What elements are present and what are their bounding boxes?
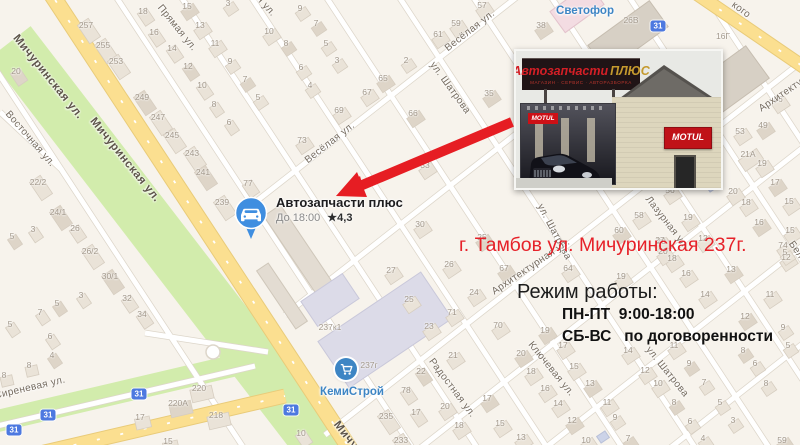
building-number: 243	[185, 148, 199, 158]
building-number: 17	[770, 177, 779, 187]
street-label: кого	[729, 0, 752, 21]
fence	[516, 178, 612, 188]
building-number: 6	[299, 62, 304, 72]
building-number: 71	[447, 307, 456, 317]
hours-weekdays: ПН-ПТ 9:00-18:00	[562, 306, 695, 324]
poi-kemistroy[interactable]: КемиСтрой	[320, 386, 384, 398]
building-number: 58	[634, 210, 643, 220]
building-number: 14	[700, 289, 709, 299]
building-number: 8	[764, 378, 769, 388]
building-number: 17	[135, 412, 144, 422]
building-number: 30	[415, 219, 424, 229]
building-number: 8	[284, 38, 289, 48]
building-number: 10	[197, 80, 206, 90]
building-number: 3	[31, 224, 36, 234]
building-number: 6	[48, 331, 53, 341]
map-screenshot: 202572552532492472452432412397722/224/11…	[0, 0, 800, 445]
building-number: 245	[165, 130, 179, 140]
building-number: 16	[540, 383, 549, 393]
building-number: 239	[215, 197, 229, 207]
billboard: MOTUL	[520, 103, 616, 185]
building-number: 12	[567, 415, 576, 425]
building-number: 16	[681, 268, 690, 278]
street-label: Мичуринская ул.	[331, 419, 405, 445]
street-label: ул. Шатрова	[643, 345, 690, 400]
building-number: 26В	[623, 15, 638, 25]
building-number: 7	[243, 74, 248, 84]
building-window	[674, 155, 696, 190]
building-number: 7	[626, 433, 631, 443]
building-number: 14	[623, 345, 632, 355]
street-label: Весёлая ул.	[443, 8, 497, 54]
building-number: 32	[122, 293, 131, 303]
building-number: 69	[334, 105, 343, 115]
building-number: 220	[192, 383, 206, 393]
building-number: 33	[420, 160, 429, 170]
building-number: 15	[785, 225, 794, 235]
building-number: 16	[149, 27, 158, 37]
building-number: 21	[448, 350, 457, 360]
motul-wall-sign: MOTUL	[664, 127, 712, 149]
building-number: 34	[137, 309, 146, 319]
street-label: Прямая ул.	[155, 3, 199, 54]
building-number: 15	[495, 418, 504, 428]
street-label: Сиреневая ул.	[0, 374, 67, 401]
building-number: 5	[783, 247, 788, 257]
building-number: 233	[394, 435, 408, 445]
building-number: 8	[2, 370, 7, 380]
street-label: Мичуринская ул.	[87, 115, 162, 204]
building-number: 57	[477, 0, 486, 10]
building-number: 15	[569, 361, 578, 371]
building-number: 5	[55, 298, 60, 308]
map-pin-autoparts[interactable]	[231, 196, 271, 242]
building-number: 67	[362, 87, 371, 97]
building-number: 3	[226, 0, 231, 8]
address-annotation: г. Тамбов ул. Мичуринская 237г.	[459, 234, 747, 257]
building-number: 5	[718, 397, 723, 407]
building-number: 4	[701, 433, 706, 443]
building-number: 59	[777, 435, 786, 445]
building-number: 12	[740, 311, 749, 321]
building-number: 9	[228, 56, 233, 66]
building-number: 22/2	[30, 177, 47, 187]
building-number: 15	[182, 1, 191, 11]
street-label: вая ул.	[246, 0, 278, 19]
building-number: 10	[581, 435, 590, 445]
building-number: 12	[183, 61, 192, 71]
building-number: 20	[11, 66, 20, 76]
building-number: 5	[256, 92, 261, 102]
building-number: 247	[151, 112, 165, 122]
building-number: 6	[753, 358, 758, 368]
street-label: Ключевая ул.	[526, 340, 577, 399]
street-label: Восточная ул.	[3, 109, 57, 169]
building-number: 66	[408, 108, 417, 118]
building-number: 24/1	[50, 207, 67, 217]
building-number: 218	[209, 410, 223, 420]
building-number: 4	[50, 350, 55, 360]
building-number: 20	[728, 186, 737, 196]
building-number: 241	[196, 167, 210, 177]
building-number: 11	[211, 38, 220, 48]
building-number: 16	[754, 217, 763, 227]
building-number: 5	[10, 231, 15, 241]
street-label: Мичуринская ул.	[10, 32, 85, 121]
building-number: 10	[296, 428, 305, 438]
building-number: 17	[411, 407, 420, 417]
building-number: 3	[335, 55, 340, 65]
building-number: 5	[324, 38, 329, 48]
building-number: 61	[433, 29, 442, 39]
building-number: 9	[298, 3, 303, 13]
building-number: 10	[264, 26, 273, 36]
building-number: 78	[401, 385, 410, 395]
building-number: 11	[603, 397, 612, 407]
building-number: 25	[404, 294, 413, 304]
building-number: 9	[613, 412, 618, 422]
building-number: 7	[314, 18, 319, 28]
building-number: 35	[484, 88, 493, 98]
building-number: 9	[781, 322, 786, 332]
building-number: 64	[563, 263, 572, 273]
building-number: 13	[585, 378, 594, 388]
hours-title: Режим работы:	[517, 281, 658, 304]
building-number: 77	[243, 178, 252, 188]
building-number: 59	[451, 18, 460, 28]
building-number: 255	[96, 40, 110, 50]
building-number: 253	[109, 56, 123, 66]
building-number: 235	[379, 411, 393, 421]
building-number: 27	[386, 265, 395, 275]
building-number: 13	[195, 20, 204, 30]
route-number-badge: 31	[651, 21, 666, 32]
building-number: 19	[616, 271, 625, 281]
route-number-badge: 31	[132, 389, 147, 400]
shopping-cart-icon[interactable]	[335, 358, 357, 380]
building-number: 20	[440, 401, 449, 411]
building-number: 9	[687, 358, 692, 368]
street-label: Архитектурная ул.	[757, 54, 800, 114]
building-wall: MOTUL	[612, 97, 721, 188]
route-number-badge: 31	[284, 405, 299, 416]
poi-svetofor[interactable]: Светофор	[556, 5, 614, 17]
building-number: 38	[536, 20, 545, 30]
building-number: 257	[79, 20, 93, 30]
building-number: 19	[757, 158, 766, 168]
building-number: 17	[482, 393, 491, 403]
building-number: 19	[540, 325, 549, 335]
building-number: 237г	[360, 360, 377, 370]
building-number: 18	[454, 420, 463, 430]
building-number: 26	[70, 223, 79, 233]
building-number: 18	[526, 366, 535, 376]
building-number: 46	[773, 94, 782, 104]
street-label: Весёлая ул.	[303, 120, 357, 166]
building-number: 8	[741, 345, 746, 355]
building-number: 23	[424, 321, 433, 331]
building-number: 8	[212, 99, 217, 109]
building-number: 10	[653, 378, 662, 388]
street-label: ул. Шатрова	[427, 60, 472, 116]
building-number: 70	[493, 320, 502, 330]
building-number: 16Г	[716, 31, 730, 41]
street-label: Бел	[786, 239, 800, 261]
building-number: 6	[227, 117, 232, 127]
building-number: 18	[138, 6, 147, 16]
route-number-badge: 31	[41, 410, 56, 421]
building-number: 14	[167, 43, 176, 53]
building-number: 220А	[168, 398, 188, 408]
building-number: 13	[516, 432, 525, 442]
storefront-photo: АвтозапчастиПЛЮС МАГАЗИН · СЕРВИС · АВТО…	[514, 49, 723, 190]
building-number: 20	[516, 348, 525, 358]
building-number: 73	[297, 135, 306, 145]
building-number: 7	[38, 307, 43, 317]
building-number: 4	[308, 80, 313, 90]
building-number: 3	[79, 290, 84, 300]
building-number: 5	[8, 319, 13, 329]
building-number: 26/2	[82, 246, 99, 256]
building-number: 12	[781, 252, 790, 262]
building-number: 11	[766, 289, 775, 299]
sign-main-text: Автозапчасти	[514, 64, 608, 78]
route-number-badge: 31	[7, 425, 22, 436]
building-number: 15	[163, 436, 172, 445]
building-number: 7	[702, 377, 707, 387]
building-number: 3	[731, 415, 736, 425]
mercedes-car	[521, 134, 615, 184]
building-number: 22	[416, 366, 425, 376]
building-number: 30/1	[102, 271, 119, 281]
building-number: 12	[640, 365, 649, 375]
building-number: 18	[741, 197, 750, 207]
building-number: 2	[404, 55, 409, 65]
building-number: 6	[688, 416, 693, 426]
building-number: 19	[683, 212, 692, 222]
building-number: 65	[378, 73, 387, 83]
building-number: 15	[784, 196, 793, 206]
building-number: 8	[27, 360, 32, 370]
building-number: 67	[499, 263, 508, 273]
building-number: 8	[672, 397, 677, 407]
building-number: 74	[778, 240, 787, 250]
building-number: 237к1	[319, 322, 342, 332]
building-number: 249	[135, 92, 149, 102]
street-label: Радостная ул.	[426, 356, 477, 419]
building-number: 53	[735, 126, 744, 136]
motul-banner-logo: MOTUL	[528, 113, 558, 124]
building-number: 14	[553, 398, 562, 408]
building-number: 13	[726, 264, 735, 274]
hours-weekend: СБ-ВС по договоренности	[562, 328, 773, 346]
building-number: 26	[444, 259, 453, 269]
building-number: 21А	[740, 149, 755, 159]
brand-logos-strip	[527, 106, 607, 110]
building-number: 49	[758, 120, 767, 130]
building-number: 5	[786, 340, 791, 350]
building-number: 24	[469, 287, 478, 297]
